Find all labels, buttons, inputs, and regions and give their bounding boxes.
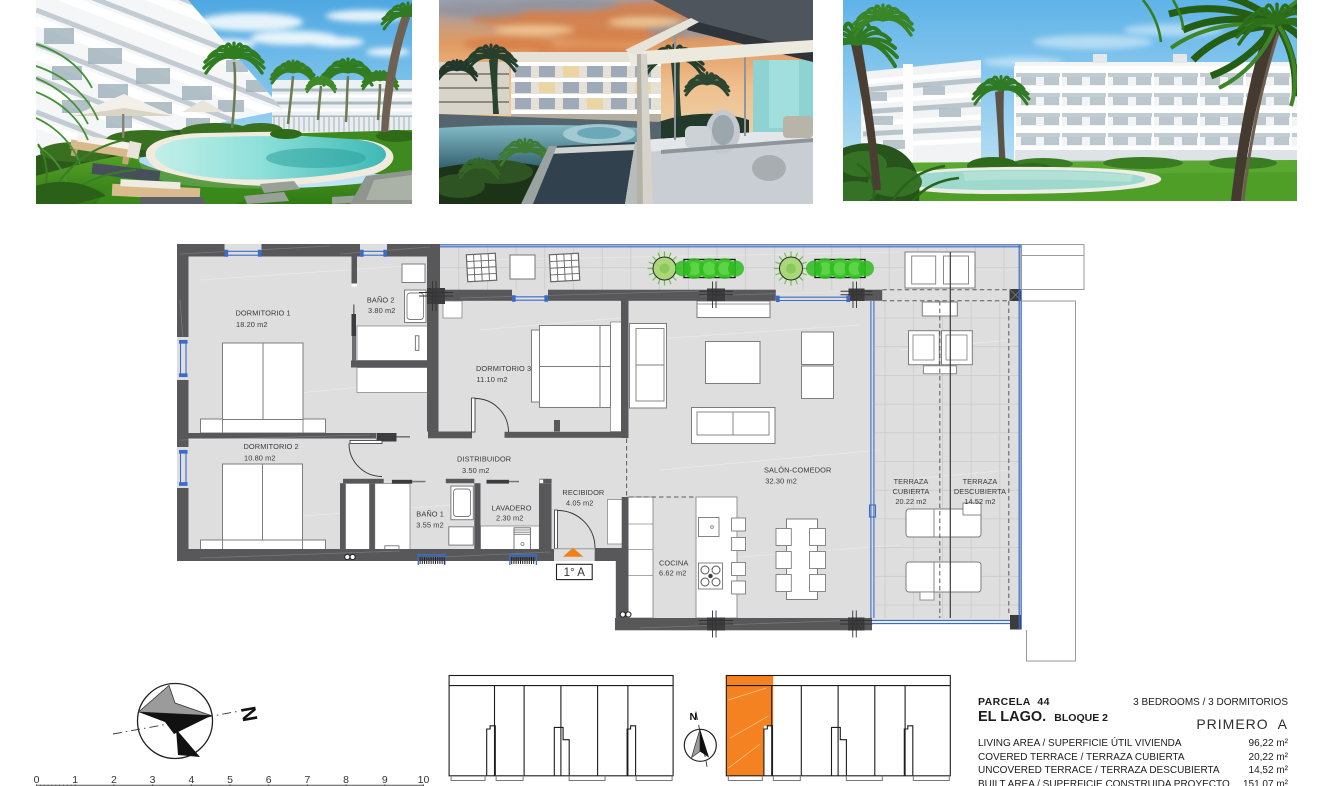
svg-text:14.52 m2: 14.52 m2 (964, 497, 995, 506)
svg-text:TERRAZA: TERRAZA (963, 477, 998, 486)
svg-text:3.50 m2: 3.50 m2 (462, 466, 489, 475)
svg-text:4.05 m2: 4.05 m2 (566, 499, 593, 508)
svg-text:DORMITORIO 2: DORMITORIO 2 (244, 442, 299, 451)
svg-text:1° A: 1° A (564, 567, 586, 579)
svg-text:LAVADERO: LAVADERO (492, 504, 532, 513)
svg-text:18.20 m2: 18.20 m2 (236, 320, 268, 329)
svg-text:DORMITORIO 1: DORMITORIO 1 (236, 309, 291, 318)
svg-text:DISTRIBUIDOR: DISTRIBUIDOR (457, 455, 511, 464)
svg-text:DORMITORIO 3: DORMITORIO 3 (476, 364, 531, 373)
svg-text:3.80 m2: 3.80 m2 (368, 306, 395, 315)
svg-text:BAÑO 1: BAÑO 1 (416, 509, 444, 518)
svg-text:N: N (690, 711, 698, 723)
svg-text:DESCUBIERTA: DESCUBIERTA (954, 487, 1006, 496)
svg-text:2.30 m2: 2.30 m2 (496, 514, 523, 523)
svg-text:20.22 m2: 20.22 m2 (895, 497, 926, 506)
svg-text:COCINA: COCINA (659, 558, 688, 567)
svg-text:11.10 m2: 11.10 m2 (477, 375, 508, 384)
svg-text:6.62 m2: 6.62 m2 (659, 568, 686, 577)
svg-text:SALÓN-COMEDOR: SALÓN-COMEDOR (764, 466, 831, 475)
svg-text:3.55 m2: 3.55 m2 (416, 521, 443, 530)
svg-text:10.80 m2: 10.80 m2 (244, 453, 276, 462)
svg-text:CUBIERTA: CUBIERTA (892, 487, 929, 496)
svg-text:32.30 m2: 32.30 m2 (765, 477, 797, 486)
svg-text:N: N (237, 704, 262, 723)
svg-text:TERRAZA: TERRAZA (894, 477, 929, 486)
svg-text:BAÑO 2: BAÑO 2 (367, 295, 395, 304)
svg-text:RECIBIDOR: RECIBIDOR (562, 488, 604, 497)
